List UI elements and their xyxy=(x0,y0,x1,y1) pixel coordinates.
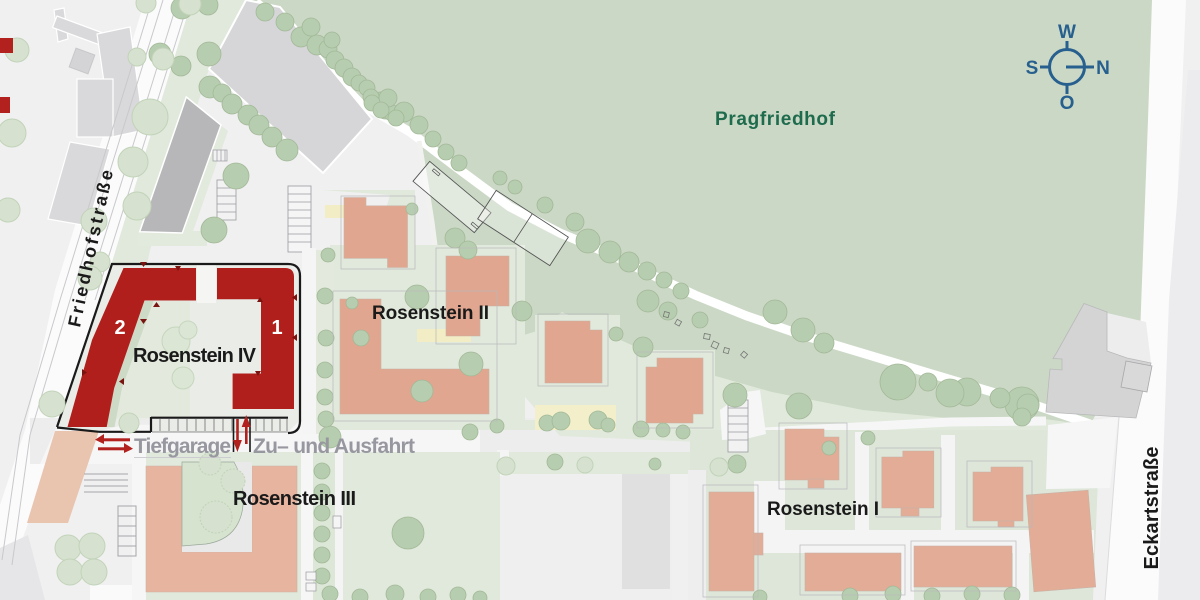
svg-text:Eckartstraße: Eckartstraße xyxy=(1141,447,1163,570)
svg-text:O: O xyxy=(1060,93,1075,114)
svg-text:Rosenstein IV: Rosenstein IV xyxy=(133,345,257,367)
svg-text:W: W xyxy=(1058,22,1076,43)
svg-text:Rosenstein II: Rosenstein II xyxy=(372,303,489,324)
svg-text:2: 2 xyxy=(114,317,125,339)
svg-text:Pragfriedhof: Pragfriedhof xyxy=(715,109,836,130)
svg-text:Rosenstein III: Rosenstein III xyxy=(233,488,356,510)
svg-text:S: S xyxy=(1026,58,1039,79)
svg-text:Rosenstein I: Rosenstein I xyxy=(767,499,879,520)
svg-text:Tiefgarage: Tiefgarage xyxy=(134,435,231,458)
svg-text:1: 1 xyxy=(271,317,282,339)
svg-text:Zu– und Ausfahrt: Zu– und Ausfahrt xyxy=(253,435,415,458)
svg-text:N: N xyxy=(1096,58,1110,79)
